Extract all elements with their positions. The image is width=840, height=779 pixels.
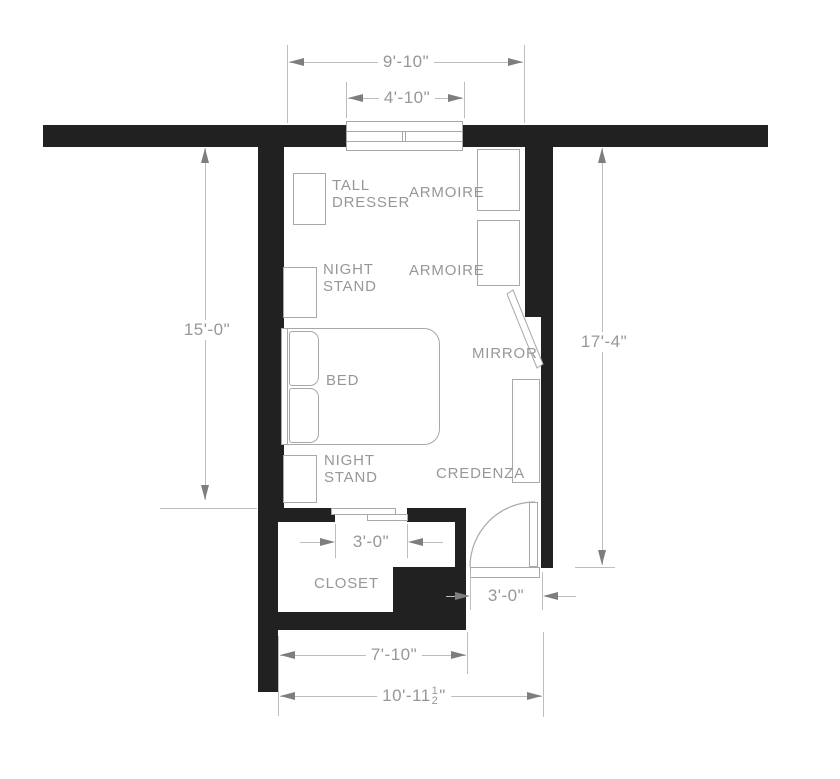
dim-right-height-arrow-top: [598, 148, 606, 163]
label-night-stand-bottom: NIGHT STAND: [324, 452, 378, 486]
bed-pillow-bottom: [289, 388, 319, 443]
dim-left-height-arrow-top: [201, 148, 209, 163]
dim-window-ext-left: [346, 82, 347, 118]
entry-door-swing-arc: [466, 500, 538, 570]
dim-overall-width-fraction-denominator: 2: [432, 696, 439, 706]
dim-overall-width-arrow-right: [527, 692, 542, 700]
dim-closet-opening-tail-right: [423, 542, 443, 543]
tall-dresser: [293, 173, 326, 225]
dim-closet-opening-arrow-left: [320, 538, 335, 546]
dim-room-width-text: 9'-10": [378, 52, 434, 72]
wall-closet-top-left: [278, 508, 335, 522]
wall-closet-block: [393, 567, 466, 612]
wall-left-lower: [258, 508, 278, 692]
dim-closet-width-arrow-left: [280, 651, 295, 659]
label-night-stand-bottom-line1: NIGHT: [324, 452, 375, 469]
label-night-stand-bottom-line2: STAND: [324, 469, 378, 486]
label-bed: BED: [326, 372, 359, 389]
dim-window-arrow-right: [448, 94, 463, 102]
closet-door-panel-right: [367, 514, 408, 521]
dim-room-width-ext-right: [524, 45, 525, 123]
dim-room-width-ext-left: [287, 45, 288, 123]
label-tall-dresser: TALL DRESSER: [332, 177, 410, 211]
wall-top-left-segment: [43, 125, 346, 147]
dim-right-height-line: [602, 148, 603, 565]
night-stand-bottom: [283, 455, 317, 503]
dim-room-width-arrow-left: [289, 58, 304, 66]
dim-left-height-ext-bottom: [160, 508, 257, 509]
dim-left-height-text: 15'-0": [179, 320, 235, 340]
dim-overall-width-arrow-left: [280, 692, 295, 700]
dim-overall-width-ext-left: [278, 636, 279, 716]
dim-closet-width-ext-right: [467, 632, 468, 674]
dim-right-height-text: 17'-4": [576, 332, 632, 352]
dim-closet-width-arrow-right: [451, 651, 466, 659]
label-tall-dresser-line1: TALL: [332, 177, 370, 194]
dim-window-text: 4'-10": [379, 88, 435, 108]
window-mullion: [402, 131, 406, 141]
dim-right-height-ext-bottom: [575, 567, 615, 568]
window-inner-line-bottom: [346, 141, 463, 142]
label-closet: CLOSET: [314, 575, 379, 592]
dim-entry-door-arrow-left: [455, 592, 470, 600]
dim-room-width-arrow-right: [508, 58, 523, 66]
dim-closet-opening-ext-left: [335, 524, 336, 558]
label-mirror: MIRROR: [472, 345, 538, 362]
night-stand-top: [283, 267, 317, 318]
wall-bottom: [278, 612, 466, 630]
dim-window-ext-right: [464, 82, 465, 118]
label-armoire-top: ARMOIRE: [409, 184, 485, 201]
dim-overall-width-whole: 10'-11: [382, 686, 430, 706]
dim-window-arrow-left: [348, 94, 363, 102]
dim-entry-door-ext-right: [542, 572, 543, 610]
label-credenza: CREDENZA: [436, 465, 525, 482]
dim-right-height-arrow-bottom: [598, 550, 606, 565]
bedroom-floor-plan: TALL DRESSER ARMOIRE ARMOIRE NIGHT STAND…: [0, 0, 840, 779]
dim-entry-door-text: 3'-0": [483, 586, 529, 606]
wall-top-right-segment: [463, 125, 768, 147]
dim-closet-opening-arrow-right: [408, 538, 423, 546]
label-night-stand-top: NIGHT STAND: [323, 261, 377, 295]
dim-overall-width-unit: ": [439, 686, 446, 706]
dim-entry-door-tail-right: [558, 596, 576, 597]
wall-closet-top-right: [407, 508, 466, 522]
dim-overall-width-fraction: 12: [432, 686, 439, 706]
dim-overall-width-ext-right: [543, 632, 544, 717]
dim-entry-door-ext-left: [470, 572, 471, 610]
wall-closet-column: [455, 522, 466, 567]
label-night-stand-top-line1: NIGHT: [323, 261, 374, 278]
dim-closet-opening-text: 3'-0": [348, 532, 394, 552]
label-night-stand-top-line2: STAND: [323, 278, 377, 295]
armoire-top: [477, 149, 520, 211]
dim-closet-width-text: 7'-10": [366, 645, 422, 665]
dim-closet-opening-tail-left: [300, 542, 320, 543]
entry-door-leaf: [529, 502, 538, 567]
label-armoire-bottom: ARMOIRE: [409, 262, 485, 279]
dim-left-height-arrow-bottom: [201, 485, 209, 500]
dim-overall-width-text: 10'-1112": [377, 686, 451, 706]
dim-entry-door-arrow-right: [543, 592, 558, 600]
bed-pillow-top: [289, 331, 319, 386]
label-tall-dresser-line2: DRESSER: [332, 194, 410, 211]
entry-door-threshold: [470, 567, 540, 578]
